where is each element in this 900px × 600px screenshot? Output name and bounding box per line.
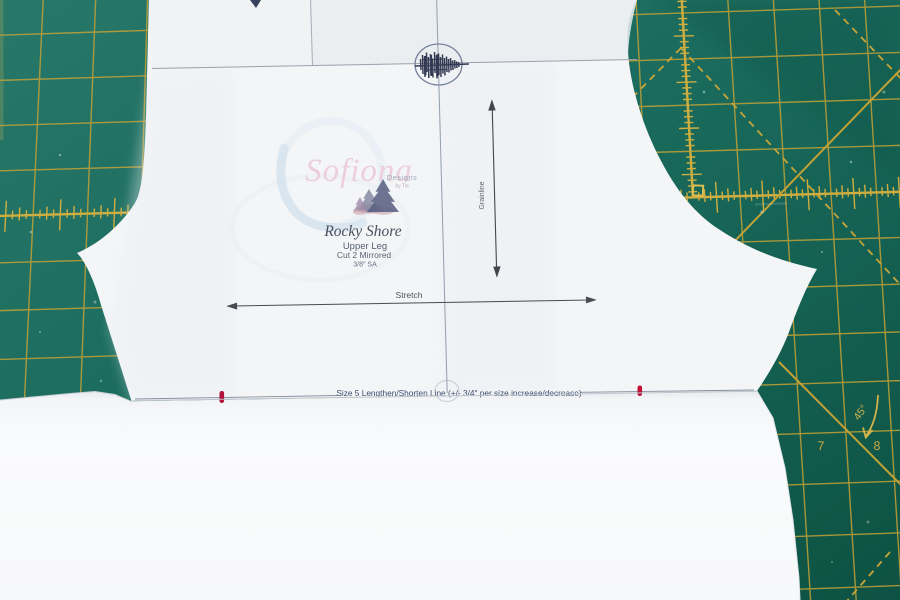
- svg-text:7: 7: [817, 439, 824, 453]
- svg-text:Designs: Designs: [387, 173, 418, 182]
- svg-text:by Tia: by Tia: [395, 184, 409, 190]
- svg-text:8: 8: [873, 439, 880, 453]
- svg-text:Cut 2 Mirrored: Cut 2 Mirrored: [337, 250, 392, 260]
- svg-text:Stretch: Stretch: [396, 290, 423, 300]
- svg-text:Rocky Shore: Rocky Shore: [323, 223, 401, 240]
- svg-text:Grainline: Grainline: [479, 181, 486, 209]
- svg-text:3/8″ SA: 3/8″ SA: [353, 262, 377, 269]
